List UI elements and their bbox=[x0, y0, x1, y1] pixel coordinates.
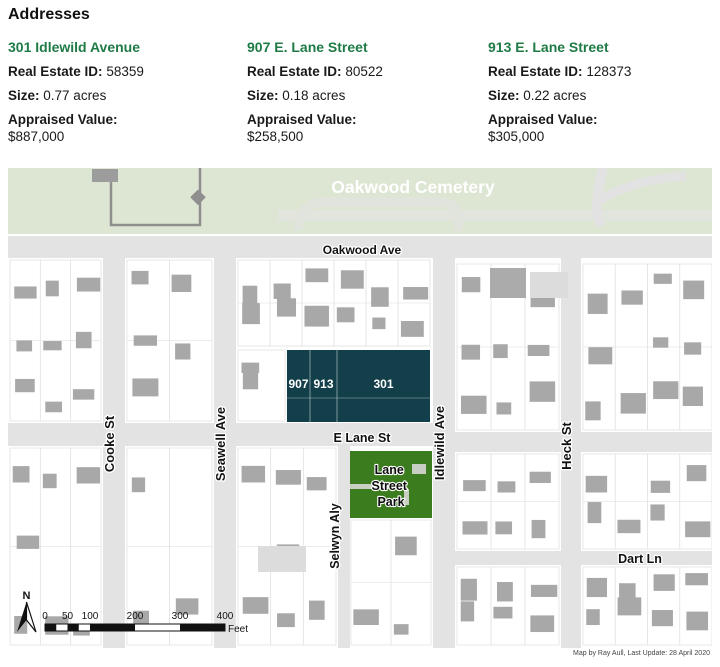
lane-street-park: Lane Street Park bbox=[350, 451, 432, 518]
heck-st-label: Heck St bbox=[559, 421, 574, 469]
property-size-line: Size: 0.18 acres bbox=[247, 88, 488, 103]
property-value: $258,500 bbox=[247, 129, 488, 144]
id-label: Real Estate ID: bbox=[8, 64, 103, 79]
cooke-st-label: Cooke St bbox=[102, 415, 117, 472]
svg-text:50: 50 bbox=[62, 611, 74, 622]
property-value-label: Appraised Value: bbox=[488, 112, 712, 127]
property-address: 907 E. Lane Street bbox=[247, 39, 488, 55]
parcel-map: 907 913 301 Lane Street Park Oakwood Cem… bbox=[8, 168, 712, 648]
north-label: N bbox=[23, 590, 31, 602]
addresses-header: Addresses 301 Idlewild Avenue Real Estat… bbox=[8, 6, 714, 153]
page-title: Addresses bbox=[8, 6, 714, 24]
svg-text:200: 200 bbox=[127, 611, 144, 622]
report-page: Addresses 301 Idlewild Avenue Real Estat… bbox=[0, 0, 720, 667]
property-value: $305,000 bbox=[488, 129, 712, 144]
size-label: Size: bbox=[8, 88, 40, 103]
id-value: 80522 bbox=[345, 64, 383, 79]
property-id-line: Real Estate ID: 58359 bbox=[8, 64, 247, 79]
property-cards: 301 Idlewild Avenue Real Estate ID: 5835… bbox=[8, 39, 714, 153]
oakwood-ave-label: Oakwood Ave bbox=[323, 243, 402, 257]
size-label: Size: bbox=[488, 88, 520, 103]
size-label: Size: bbox=[247, 88, 279, 103]
selwyn-aly-label: Selwyn Aly bbox=[328, 503, 342, 569]
size-value: 0.18 acres bbox=[282, 88, 345, 103]
map-attribution: Map by Ray Aull, Last Update: 28 April 2… bbox=[573, 650, 710, 657]
property-value: $887,000 bbox=[8, 129, 247, 144]
seawell-ave-label: Seawell Ave bbox=[213, 407, 228, 481]
e-lane-st-label: E Lane St bbox=[334, 431, 392, 445]
property-id-line: Real Estate ID: 128373 bbox=[488, 64, 712, 79]
property-size-line: Size: 0.77 acres bbox=[8, 88, 247, 103]
scale-unit: Feet bbox=[228, 624, 248, 635]
parcel-label-913: 913 bbox=[313, 377, 333, 391]
property-card-301: 301 Idlewild Avenue Real Estate ID: 5835… bbox=[8, 39, 247, 153]
property-size-line: Size: 0.22 acres bbox=[488, 88, 712, 103]
id-value: 58359 bbox=[106, 64, 144, 79]
id-value: 128373 bbox=[586, 64, 631, 79]
svg-text:100: 100 bbox=[82, 611, 99, 622]
road-dart-ln bbox=[445, 551, 712, 565]
size-value: 0.77 acres bbox=[43, 88, 106, 103]
property-id-line: Real Estate ID: 80522 bbox=[247, 64, 488, 79]
idlewild-ave-label: Idlewild Ave bbox=[432, 406, 447, 480]
property-address: 301 Idlewild Avenue bbox=[8, 39, 247, 55]
property-address: 913 E. Lane Street bbox=[488, 39, 712, 55]
svg-text:400: 400 bbox=[217, 611, 234, 622]
property-value-label: Appraised Value: bbox=[247, 112, 488, 127]
dart-ln-label: Dart Ln bbox=[618, 552, 662, 566]
id-label: Real Estate ID: bbox=[488, 64, 583, 79]
property-card-907: 907 E. Lane Street Real Estate ID: 80522… bbox=[247, 39, 488, 153]
property-value-label: Appraised Value: bbox=[8, 112, 247, 127]
property-card-913: 913 E. Lane Street Real Estate ID: 12837… bbox=[488, 39, 712, 153]
size-value: 0.22 acres bbox=[523, 88, 586, 103]
cemetery-label: Oakwood Cemetery bbox=[331, 177, 495, 197]
parcel-label-907: 907 bbox=[288, 377, 308, 391]
highlighted-parcels: 907 913 301 bbox=[287, 350, 430, 422]
svg-text:300: 300 bbox=[172, 611, 189, 622]
id-label: Real Estate ID: bbox=[247, 64, 342, 79]
cemetery-building bbox=[92, 169, 118, 182]
svg-text:0: 0 bbox=[42, 611, 48, 622]
parcel-label-301: 301 bbox=[373, 377, 393, 391]
